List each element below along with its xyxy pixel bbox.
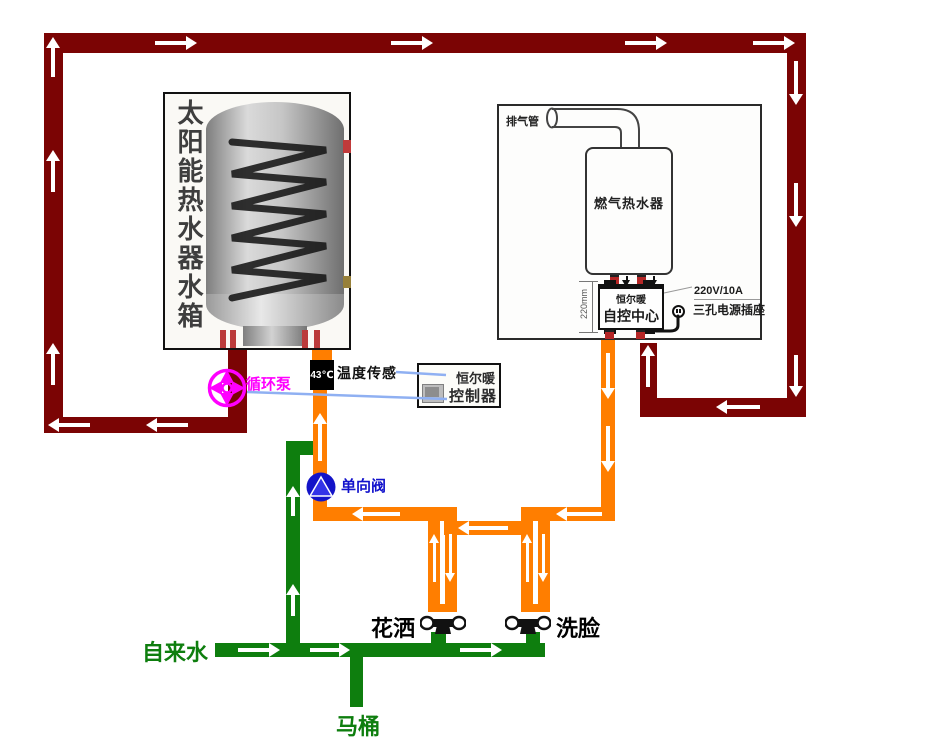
flow-arrow-right-icon xyxy=(753,36,795,50)
flow-arrow-up-icon xyxy=(46,343,60,385)
flow-arrow-left-icon xyxy=(48,418,90,432)
control-center-stub xyxy=(636,330,645,339)
controller-box: 恒尔暖 控制器 xyxy=(417,363,501,408)
cold-pipe-toilet-branch xyxy=(350,650,363,707)
flow-arrow-right-icon xyxy=(460,643,502,657)
control-center-name: 自控中心 xyxy=(600,306,662,326)
temperature-value: 43℃ xyxy=(310,370,333,381)
dimension-line xyxy=(592,282,593,332)
tank-stub-aux xyxy=(343,276,351,288)
flow-arrow-right-icon xyxy=(155,36,197,50)
flow-arrow-left-icon xyxy=(556,507,602,521)
flow-arrow-down-icon xyxy=(445,534,456,582)
solar-water-heating-diagram: 太阳能热水器水箱 排气管 燃气热水器 恒尔暖 自控中心 220mm xyxy=(0,0,945,744)
controller-display-icon xyxy=(422,384,444,403)
tank-fitting xyxy=(220,330,226,348)
pump-label: 循环泵 xyxy=(246,373,291,394)
flow-arrow-right-icon xyxy=(310,643,350,657)
flow-arrow-left-icon xyxy=(716,400,760,414)
flow-arrow-down-icon xyxy=(538,534,549,582)
tank-pedestal xyxy=(243,326,307,346)
socket-label: 三孔电源插座 xyxy=(693,301,765,318)
toilet-label: 马桶 xyxy=(336,709,380,741)
check-valve-icon xyxy=(305,471,337,503)
flow-arrow-left-icon xyxy=(146,418,188,432)
pump-icon xyxy=(206,367,248,409)
controller-name: 控制器 xyxy=(449,385,497,406)
basin-label: 洗脸 xyxy=(556,611,600,643)
power-plug-icon xyxy=(672,305,685,318)
flow-arrow-up-icon xyxy=(641,345,655,387)
flow-arrow-down-icon xyxy=(789,61,803,105)
dimension-label: 220mm xyxy=(578,282,590,326)
control-center-stub xyxy=(605,330,614,339)
flow-arrow-down-icon xyxy=(789,183,803,227)
flow-arrow-down-icon xyxy=(601,426,615,472)
flow-arrow-up-icon xyxy=(286,584,300,616)
flow-arrow-up-icon xyxy=(522,534,533,582)
control-center-brand: 恒尔暖 xyxy=(600,291,662,306)
temperature-sensor-label: 温度传感 xyxy=(337,363,397,383)
check-valve-label: 单向阀 xyxy=(341,475,386,496)
flow-arrow-up-icon xyxy=(46,37,60,77)
tank-coil-icon xyxy=(206,102,344,328)
solar-tank-panel: 太阳能热水器水箱 xyxy=(163,92,351,350)
flow-arrow-right-icon xyxy=(391,36,433,50)
control-center-box: 恒尔暖 自控中心 xyxy=(598,284,664,330)
tank-stub-hot xyxy=(343,140,351,153)
solar-tank-label: 太阳能热水器水箱 xyxy=(171,99,208,343)
shower-faucet-icon xyxy=(420,615,466,639)
basin-faucet-icon xyxy=(505,615,551,639)
tank-fitting xyxy=(302,330,308,348)
flow-arrow-up-icon xyxy=(313,413,327,461)
gas-heater-body: 燃气热水器 xyxy=(585,147,673,275)
flow-arrow-right-icon xyxy=(625,36,667,50)
power-rating-label: 220V/10A xyxy=(694,285,743,297)
tank-fitting xyxy=(230,330,236,348)
flow-arrow-up-icon xyxy=(286,486,300,516)
tap-water-label: 自来水 xyxy=(142,635,208,667)
flow-arrow-down-icon xyxy=(601,353,615,399)
power-underline xyxy=(694,299,760,300)
dimension-tick xyxy=(579,332,598,333)
flow-arrow-left-icon xyxy=(458,521,508,535)
flow-arrow-up-icon xyxy=(429,534,440,582)
temperature-sensor-icon: 43℃ xyxy=(310,360,334,390)
flow-arrow-up-icon xyxy=(46,150,60,192)
flow-arrow-down-icon xyxy=(789,355,803,397)
flow-arrow-right-icon xyxy=(238,643,280,657)
tank-fitting xyxy=(314,330,320,348)
shower-label: 花洒 xyxy=(371,611,415,643)
flow-arrow-left-icon xyxy=(352,507,400,521)
gas-heater-name: 燃气热水器 xyxy=(587,193,671,212)
